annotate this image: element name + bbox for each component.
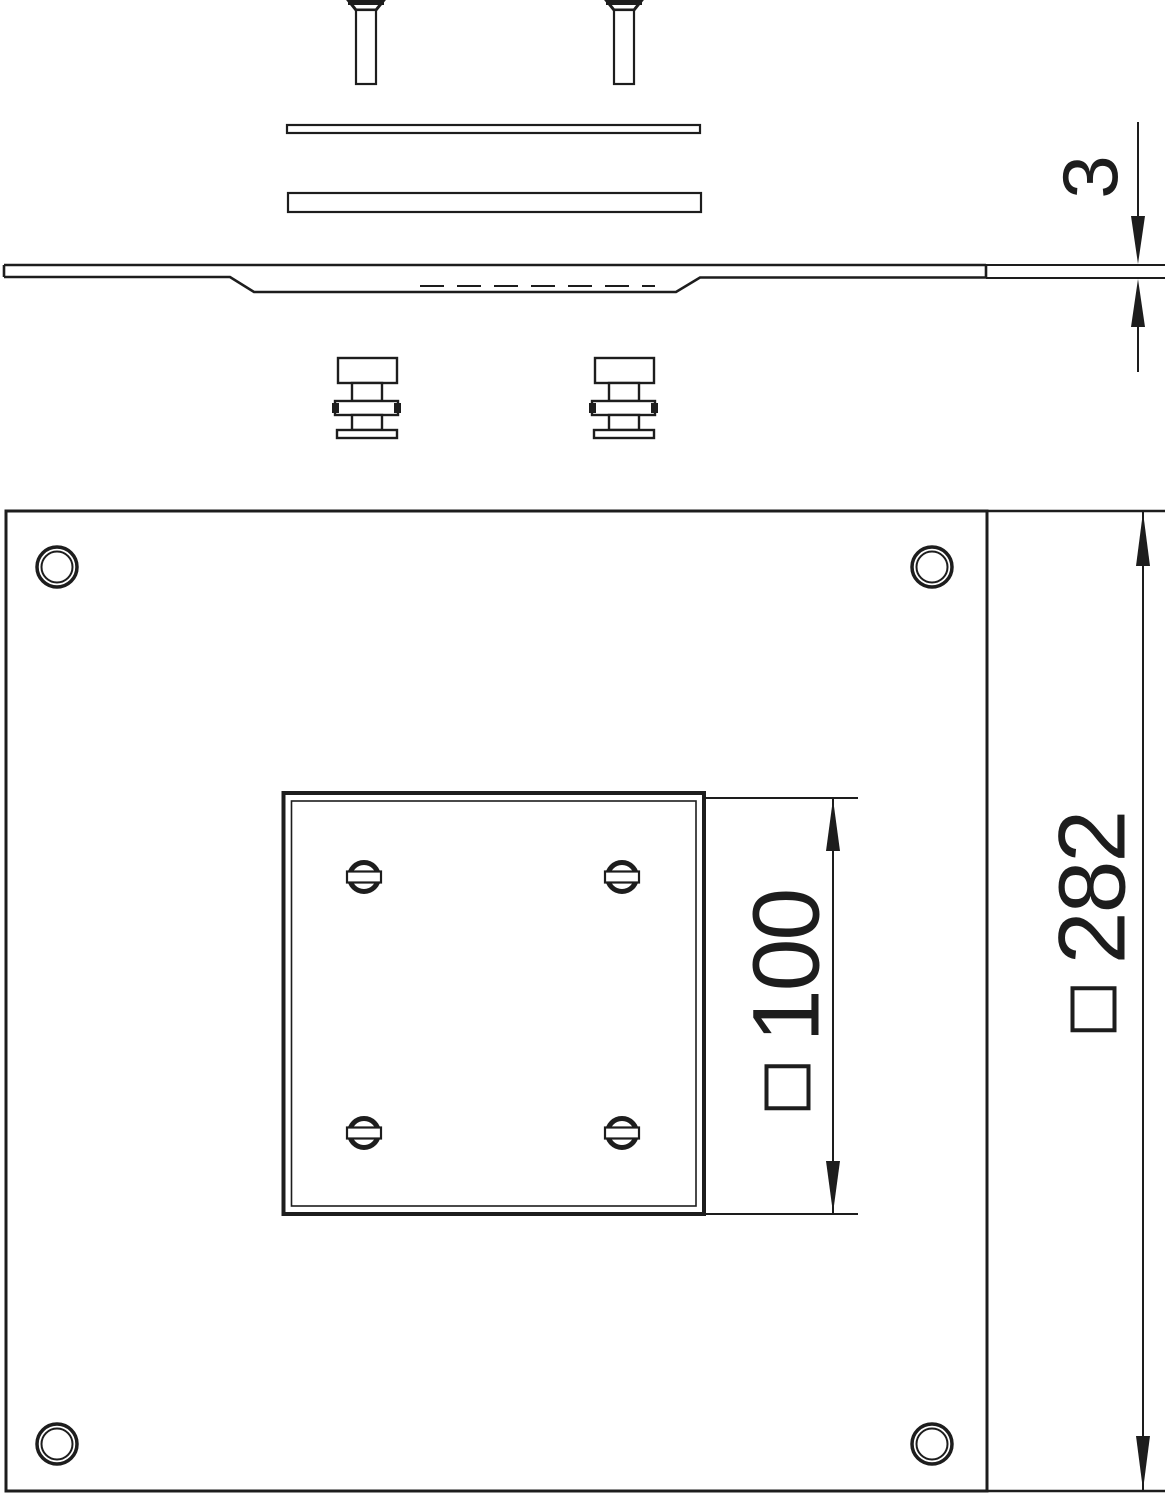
cover-plate-profile — [4, 265, 986, 292]
arrowhead-up-icon — [1136, 512, 1150, 566]
plate-dimension-value: 282 — [1046, 812, 1141, 965]
thickness-dimension-label: 3 — [1051, 157, 1129, 198]
arrowhead-down-icon — [1131, 216, 1145, 264]
countersunk-screw-left-icon — [348, 0, 384, 84]
plan-view — [6, 511, 1165, 1491]
square-symbol — [764, 1064, 810, 1110]
levelling-fastener-left-icon — [332, 358, 401, 438]
cutout-dimension-label: 100 — [740, 890, 835, 1111]
gasket-strip-thick — [288, 193, 701, 212]
arrowhead-down-icon — [1136, 1436, 1150, 1490]
technical-drawing: 3 100 282 — [0, 0, 1165, 1500]
cutout-dimension-value: 100 — [740, 890, 835, 1043]
plate-dimension-label: 282 — [1046, 812, 1141, 1033]
levelling-fastener-right-icon — [589, 358, 658, 438]
side-view — [4, 0, 1165, 438]
square-symbol — [1070, 986, 1116, 1032]
countersunk-screw-right-icon — [606, 0, 642, 84]
arrowhead-up-icon — [1131, 279, 1145, 327]
thickness-value: 3 — [1051, 157, 1129, 198]
gasket-strip-thin — [287, 125, 700, 133]
device-cutout-square — [284, 793, 705, 1214]
drawing-geometry — [0, 0, 1165, 1500]
